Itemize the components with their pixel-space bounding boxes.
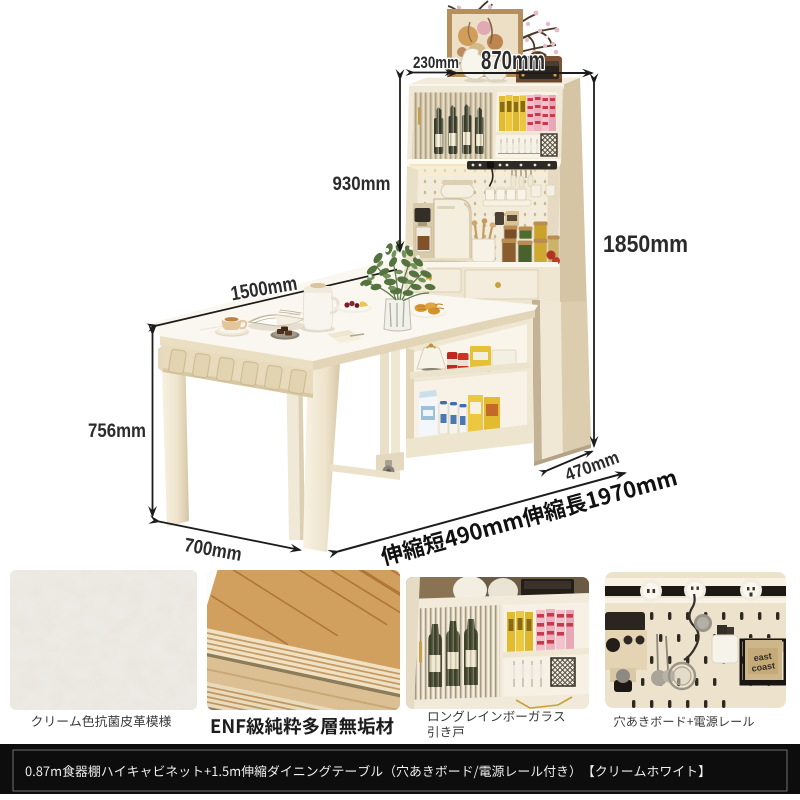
svg-text:870mm: 870mm — [481, 45, 545, 75]
svg-text:230mm: 230mm — [413, 53, 459, 72]
svg-text:1850mm: 1850mm — [603, 231, 688, 258]
svg-text:930mm: 930mm — [333, 173, 391, 195]
svg-text:756mm: 756mm — [88, 420, 146, 442]
